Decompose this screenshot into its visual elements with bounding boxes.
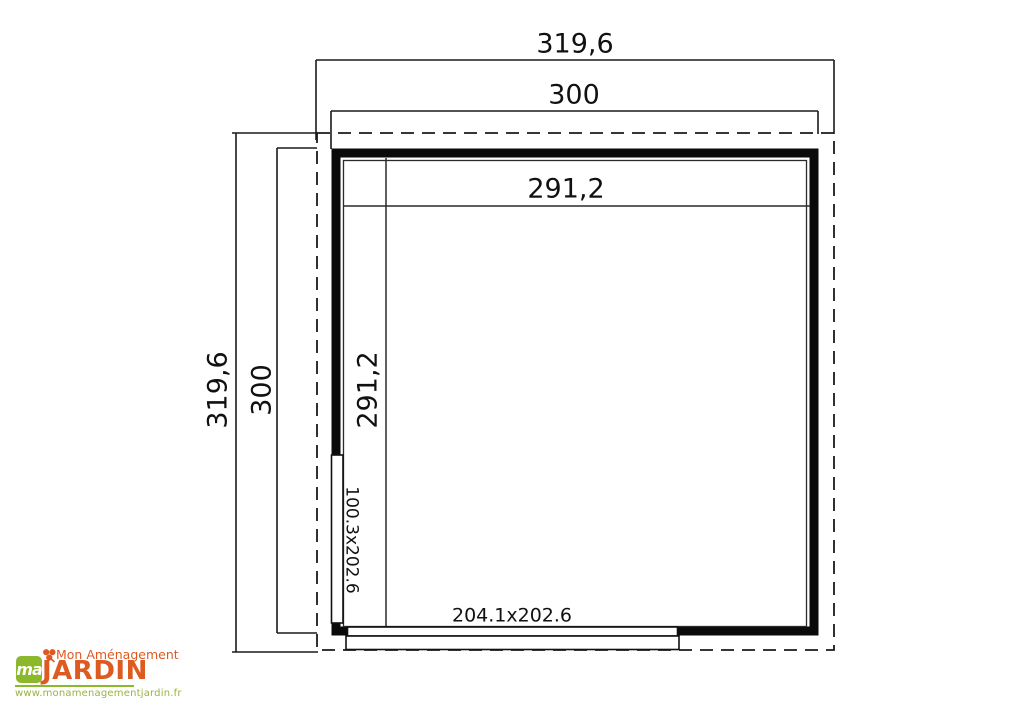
dim-label-outer-width: 319,6	[536, 31, 613, 58]
dim-label-inner-height: 291,2	[355, 351, 382, 428]
side-door-size-label: 100.3x202.6	[343, 486, 360, 593]
logo-monogram-text: ma	[16, 660, 41, 679]
floor-plan-drawing	[0, 0, 1024, 705]
logo-monogram-badge: ma	[16, 656, 42, 683]
dim-label-wall-height: 300	[249, 364, 276, 416]
logo-brand-name: JARDIN	[42, 658, 148, 684]
dim-label-wall-width: 300	[548, 82, 600, 109]
front-door-leaf-outer	[346, 636, 679, 650]
logo-website-url: www.monamenagementjardin.fr	[15, 688, 182, 699]
wall-inner-face	[344, 161, 807, 627]
dim-label-inner-width: 291,2	[527, 176, 604, 203]
front-door-size-label: 204.1x202.6	[452, 607, 572, 626]
front-door-leaf-inner	[348, 627, 678, 636]
logo-divider	[15, 685, 134, 687]
roof-overhang-outline	[317, 133, 834, 650]
wall-outline	[336, 153, 814, 631]
floor-plan-canvas: 319,6 300 291,2 319,6 300 291,2 100.3x20…	[0, 0, 1024, 705]
dim-label-outer-height: 319,6	[205, 351, 232, 428]
